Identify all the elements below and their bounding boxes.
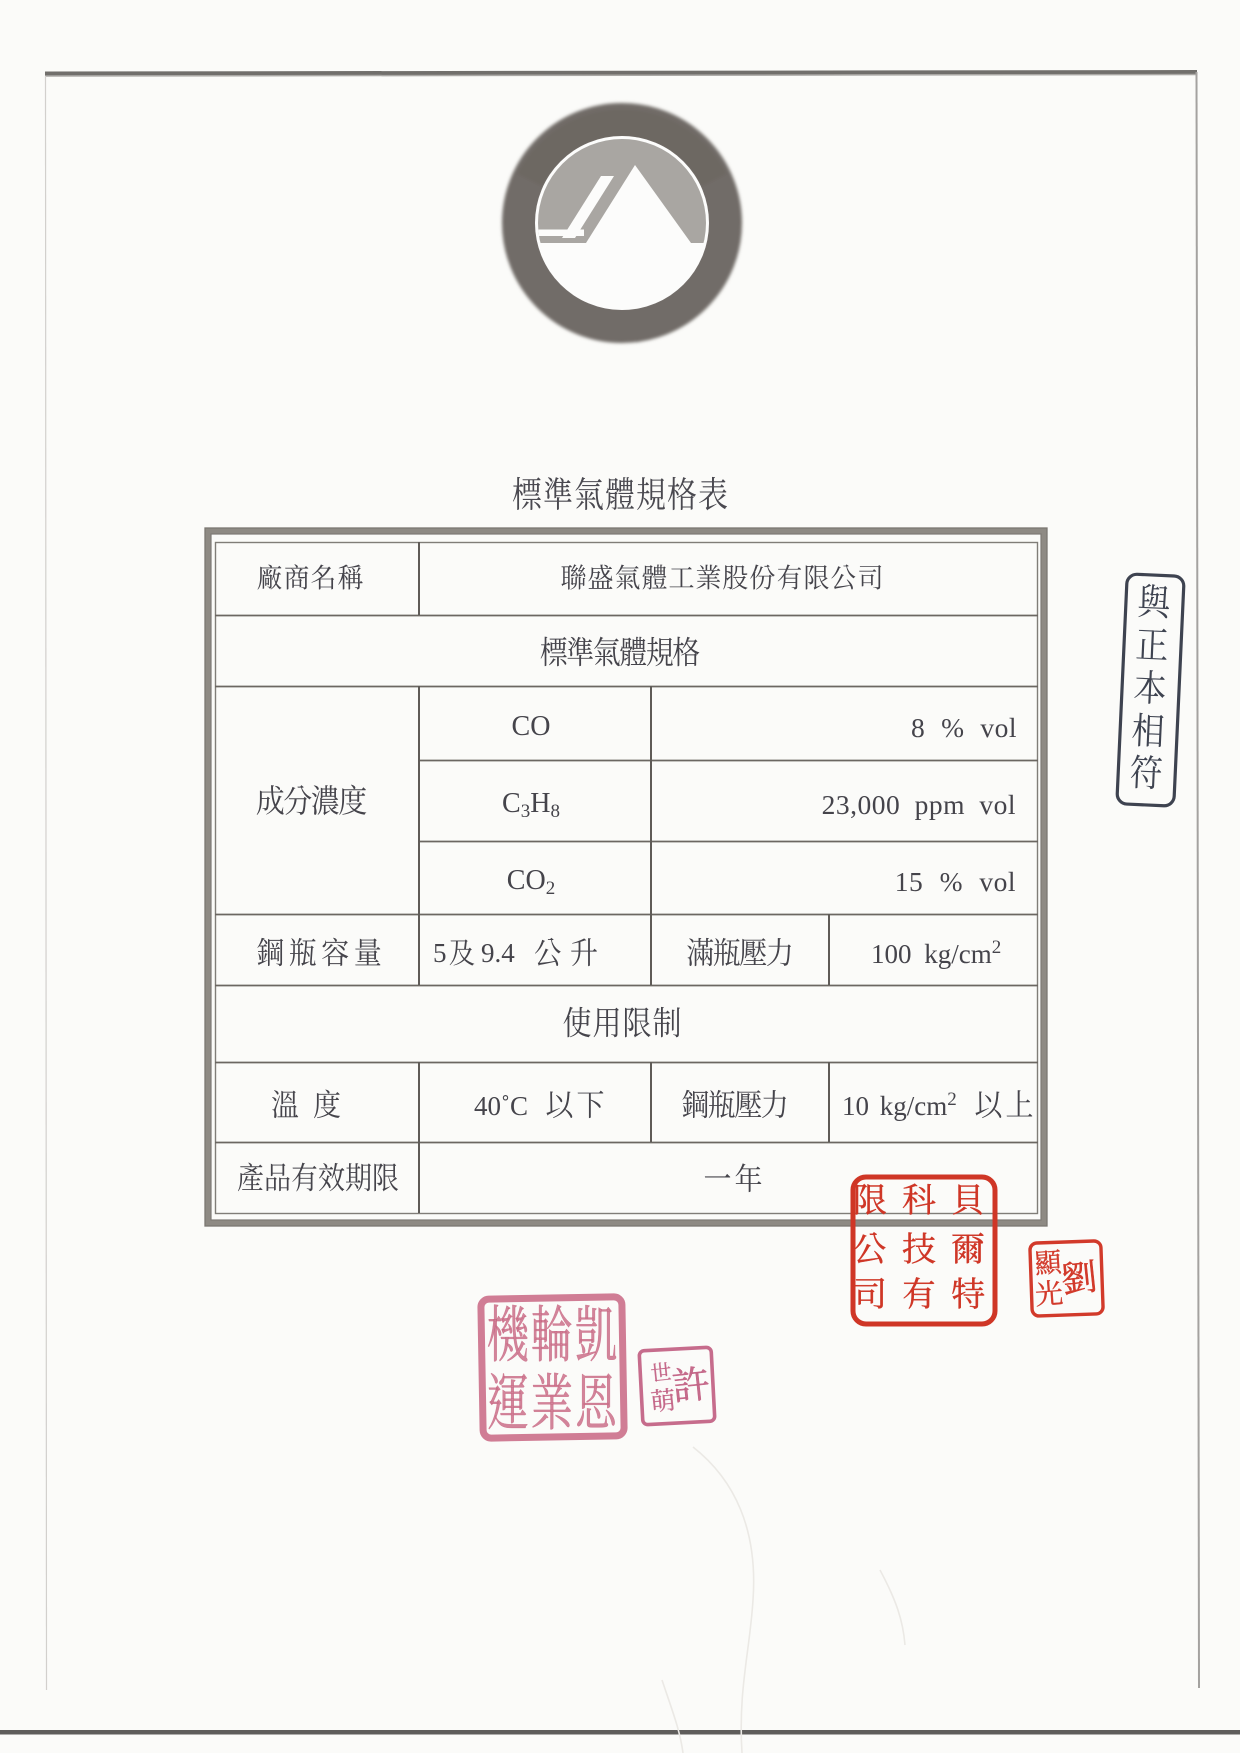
svg-text:9.4: 9.4: [481, 938, 515, 968]
svg-text:5: 5: [433, 938, 447, 968]
svg-text:100 kg/cm2: 100 kg/cm2: [871, 937, 1001, 969]
svg-text:23,000 ppm vol: 23,000 ppm vol: [822, 789, 1016, 820]
svg-text:15 % vol: 15 % vol: [895, 866, 1016, 897]
svg-text:CO: CO: [512, 711, 551, 742]
svg-text:8 % vol: 8 % vol: [911, 712, 1017, 743]
svg-text:10 kg/cm2: 10 kg/cm2: [842, 1089, 957, 1121]
svg-text:40˚C: 40˚C: [474, 1091, 528, 1121]
